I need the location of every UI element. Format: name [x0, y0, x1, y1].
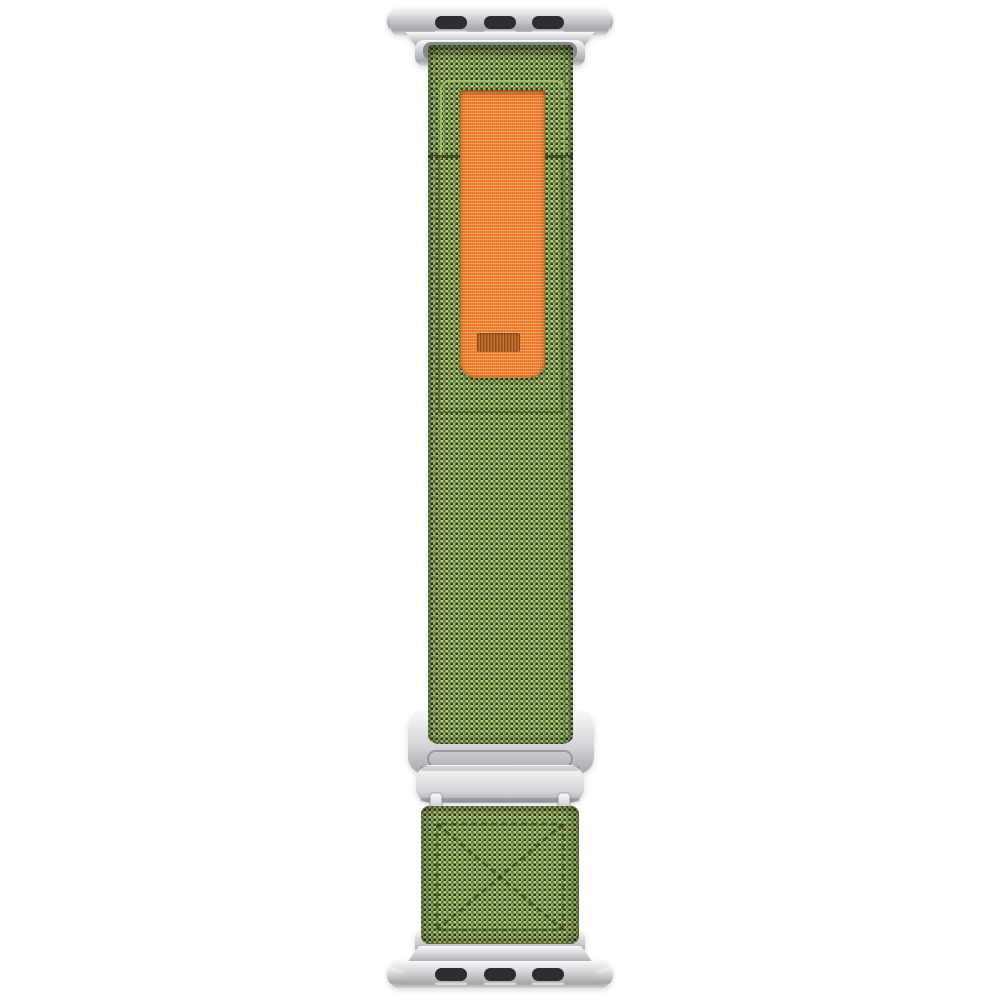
slot-highlight-3: [532, 31, 564, 34]
product-photo-watch-band: [0, 0, 1000, 1000]
adapter-slot-1: [435, 16, 467, 29]
orange-pull-tab: [460, 90, 545, 378]
pocket-stitch-left: [438, 158, 440, 411]
bottom-slot-highlight-1: [435, 983, 467, 986]
bottom-slot-highlight-2: [484, 983, 516, 986]
adapter-slot-2: [484, 16, 516, 29]
strap-end-square: [421, 806, 579, 944]
slot-highlight-1: [435, 31, 467, 34]
slot-highlight-2: [484, 31, 516, 34]
pocket-bottom-seam: [438, 411, 563, 413]
edge-stitch-right: [566, 55, 568, 736]
pull-tab-label-patch: [477, 333, 520, 352]
adapter-bottom-slot-1: [435, 968, 467, 981]
adapter-slot-3: [532, 16, 564, 29]
pocket-stitch-right: [561, 158, 563, 411]
x-box-stitch: [421, 806, 579, 944]
edge-stitch-left: [433, 55, 435, 736]
buckle-plate-shadow: [420, 766, 580, 771]
bottom-slot-highlight-3: [532, 983, 564, 986]
buckle-plate-lower-shadow: [420, 798, 580, 802]
adapter-bottom-slot-2: [484, 968, 516, 981]
adapter-bottom-slot-3: [532, 968, 564, 981]
